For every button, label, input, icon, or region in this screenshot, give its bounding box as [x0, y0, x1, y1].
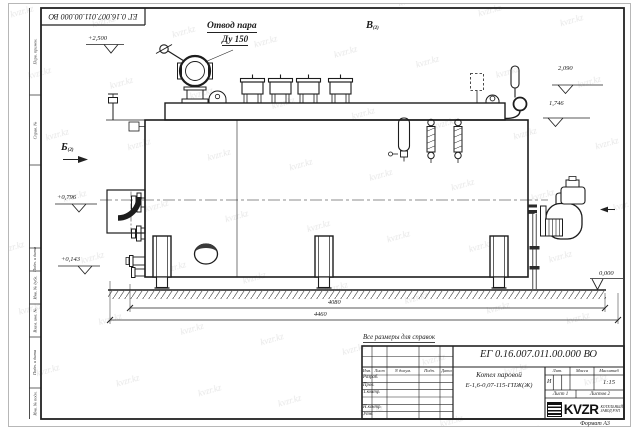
tb-row-tkontr: Т.контр.	[363, 391, 380, 396]
margin-cell-inv-dubl: Инв. № дубл.	[29, 271, 41, 304]
tb-sheets-total: Листов 2	[576, 392, 624, 397]
reference-note: Все размеры для справок	[363, 335, 435, 344]
tb-row-utv: Утв.	[363, 413, 373, 418]
tb-row-prov: Пров.	[363, 384, 375, 389]
kvzr-logo-text: KVZR	[564, 402, 599, 417]
tb-sheet-number: Лист 1	[546, 392, 575, 397]
elevation-value: 1,746	[549, 101, 564, 108]
kvzr-logo-subtitle: КОТЕЛЬНЫЙ ЗАВОД РЭП	[601, 405, 623, 414]
tb-product-name-2: Е-1,6-0,07-115-ГПЖ(Ж)	[453, 383, 545, 390]
elevation-value: 2,090	[558, 66, 573, 73]
kvzr-logo-mark	[547, 402, 562, 417]
company-logo: KVZR КОТЕЛЬНЫЙ ЗАВОД РЭП	[547, 401, 623, 417]
view-label-v: В(2)	[366, 21, 379, 32]
dim-text-4080: 4080	[328, 300, 341, 306]
margin-cell-podp-data-1: Подп. и дата	[29, 248, 41, 271]
margin-label: Подп. и дата	[33, 350, 38, 375]
margin-label: Взам. инв. №	[33, 308, 38, 332]
tb-col-list: Лист	[372, 369, 387, 373]
tb-col-sign: Подп.	[419, 369, 440, 373]
tb-col-izm: Изм.	[362, 369, 372, 373]
tb-scale-value: 1:15	[594, 380, 624, 387]
tb-mass-header: Масса	[570, 369, 594, 374]
tb-designation: ЕГ 0.16.007.011.00.000 ВО	[453, 350, 624, 361]
top-designation-rotated: ЕГ 0.16.007.011.00.000 ВО	[41, 8, 145, 25]
tb-scale-header: Масштаб	[594, 369, 624, 374]
tb-row-nkontr: Н.контр.	[363, 406, 382, 411]
margin-label: Инв. № подл.	[33, 391, 38, 415]
boiler-drawing-canvas: kvzr.kz kvzr.kz	[0, 0, 644, 430]
view-letter: Б	[61, 142, 68, 153]
elevation-value: +0,796	[57, 195, 76, 202]
drawing-sheet: kvzr.kz kvzr.kz	[0, 0, 644, 430]
margin-label: Перв. примен.	[33, 38, 38, 64]
view-sheet-ref: (2)	[373, 26, 379, 31]
view-label-b: Б(2)	[61, 143, 74, 154]
view-letter: В	[366, 20, 373, 31]
dim-text-4460: 4460	[314, 312, 327, 318]
tb-product-name-1: Котел паровой	[453, 372, 545, 379]
view-sheet-ref: (2)	[68, 148, 74, 153]
steam-outlet-label-line1: Отвод пара	[207, 22, 257, 33]
margin-cell-podp-data-2: Подп. и дата	[29, 337, 41, 388]
margin-label: Инв. № дубл.	[33, 276, 38, 300]
tb-col-date: Дата	[440, 369, 453, 373]
steam-outlet-label-line2: Ду 150	[222, 35, 248, 46]
margin-cell-vzam-inv: Взам. инв. №	[29, 304, 41, 337]
elevation-value: 0,000	[599, 271, 614, 278]
tb-row-razrab: Разраб.	[363, 376, 378, 381]
kvzr-sub-line2: ЗАВОД РЭП	[601, 409, 623, 413]
ground	[108, 290, 606, 299]
margin-label: Справ. №	[33, 121, 38, 139]
tb-col-doc: N докум.	[387, 369, 419, 373]
elevation-value: +2,500	[88, 36, 107, 43]
margin-cell-inv-podl: Инв. № подл.	[29, 388, 41, 419]
format-label: Формат А3	[566, 421, 624, 427]
margin-cell-sprav-no: Справ. №	[29, 95, 41, 165]
tb-lit-header: Лит.	[545, 369, 570, 374]
margin-label: Подп. и дата	[33, 247, 38, 272]
margin-cell-perv-primen: Перв. примен.	[29, 8, 41, 95]
tb-lit-value: И	[545, 379, 553, 385]
elevation-value: +0,143	[61, 257, 80, 264]
